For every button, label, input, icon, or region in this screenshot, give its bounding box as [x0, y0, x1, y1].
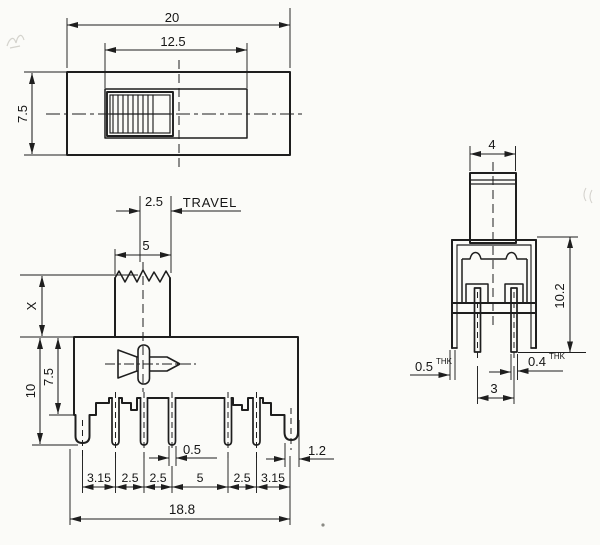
dim-slider-width: 12.5: [105, 34, 247, 88]
dim-label-0-5: 0.5: [183, 442, 201, 457]
dim-label-5: 5: [142, 238, 149, 253]
dim-corner-offset: 1.2: [266, 420, 334, 467]
scan-artifacts: [7, 35, 592, 526]
dim-label-20: 20: [165, 10, 179, 25]
top-view: 20 12.5 7.5: [15, 8, 303, 168]
scan-dot: [321, 523, 324, 526]
dim-label-x: X: [24, 301, 39, 310]
dim-travel: 2.5 TRAVEL: [116, 194, 241, 211]
technical-drawing-canvas: 20 12.5 7.5: [0, 0, 600, 545]
pitch-label-6: 3.15: [261, 471, 285, 485]
dim-total-height: 10: [23, 338, 78, 445]
thk-suffix-1: THK: [436, 357, 453, 366]
dim-pin-thickness: 0.4 THK: [489, 352, 566, 380]
dim-label-7-5-front: 7.5: [41, 368, 56, 386]
pitch-label-2: 2.5: [121, 471, 138, 485]
dim-frame-thickness: 0.5 THK: [410, 350, 455, 380]
dim-pin-width: 0.5: [149, 442, 217, 466]
dim-label-10-2: 10.2: [552, 283, 567, 308]
dim-label-0-4-thk: 0.4: [528, 354, 546, 369]
dim-label-4: 4: [488, 137, 495, 152]
terminal-pins-side: [475, 288, 518, 362]
pitch-label-5: 2.5: [233, 471, 250, 485]
cross-arrow-marker: [105, 345, 196, 384]
pitch-label-4: 5: [197, 471, 204, 485]
pitch-label-1: 3.15: [87, 471, 111, 485]
dim-label-0-5-thk: 0.5: [415, 359, 433, 374]
side-view: 4 10.2 0.5 THK 0.4 THK: [410, 137, 586, 404]
dim-body-height: 7.5: [41, 338, 73, 415]
pitch-label-3: 2.5: [149, 471, 166, 485]
slide-switch-drawing: 20 12.5 7.5: [0, 0, 600, 545]
dim-side-height: 10.2: [518, 237, 586, 353]
dim-label-3: 3: [490, 381, 497, 396]
scan-smudge: [7, 35, 24, 48]
front-body-outline: [74, 337, 298, 443]
dim-label-18-8: 18.8: [169, 502, 195, 517]
slider-knob-top: [107, 92, 173, 136]
travel-label: TRAVEL: [183, 195, 237, 210]
front-view: 2.5 TRAVEL 5 X 10 7.5: [20, 194, 334, 525]
dim-shaft-height: X: [24, 276, 42, 336]
dim-knob-width: 5: [115, 238, 171, 255]
dim-label-7-5-top: 7.5: [15, 105, 30, 123]
dim-label-12-5: 12.5: [160, 34, 185, 49]
dim-label-1-2: 1.2: [308, 443, 326, 458]
dim-label-10: 10: [23, 384, 38, 398]
dim-label-travel-2-5: 2.5: [145, 194, 163, 209]
scan-mark: [584, 188, 592, 203]
thk-suffix-2: THK: [549, 352, 566, 361]
